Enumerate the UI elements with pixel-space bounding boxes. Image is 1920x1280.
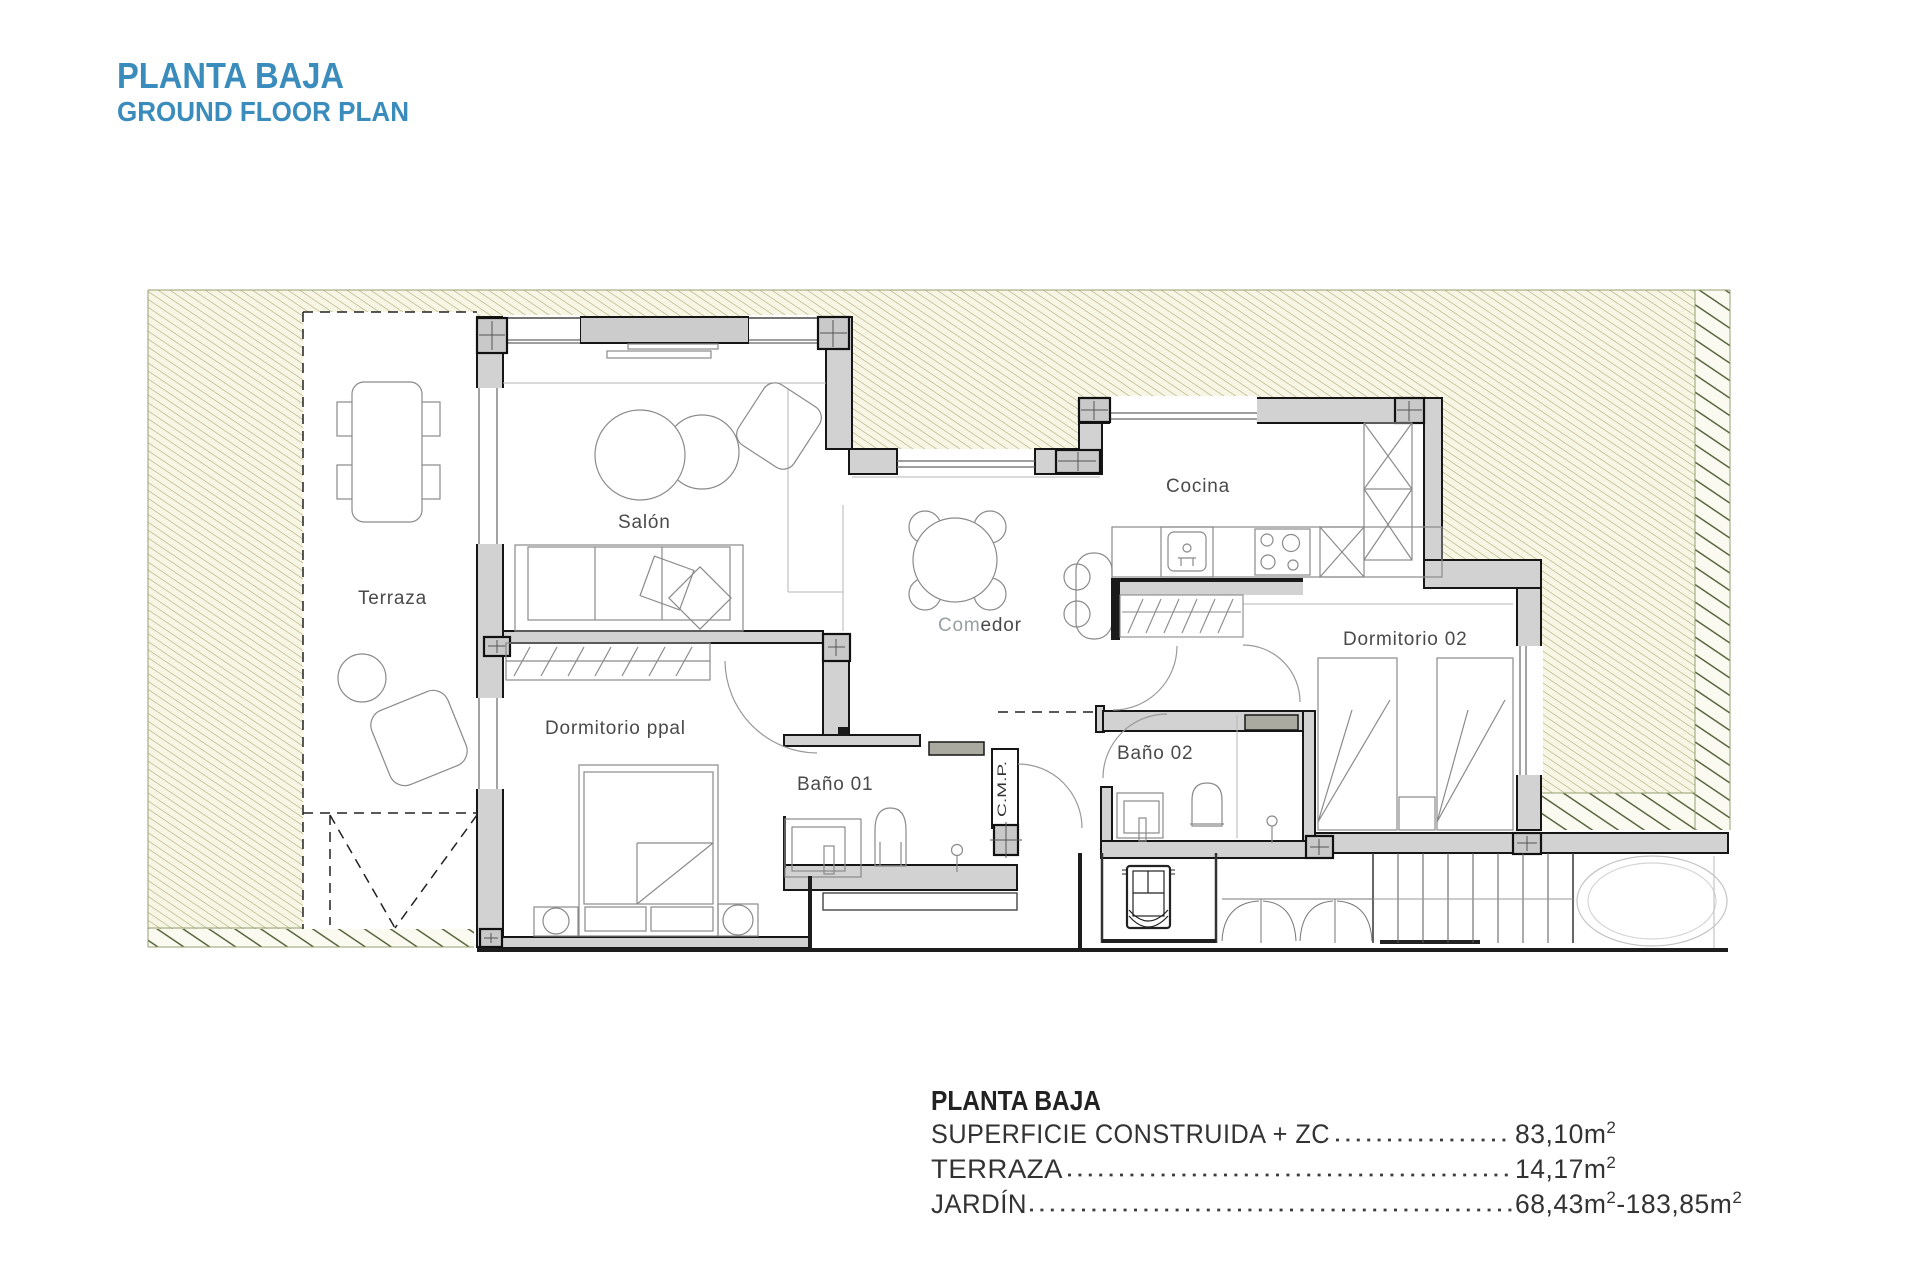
- svg-text:PLANTA BAJA: PLANTA BAJA: [117, 55, 344, 96]
- svg-text:Dormitorio ppal: Dormitorio ppal: [545, 718, 686, 739]
- svg-text:Comedor: Comedor: [938, 615, 1022, 636]
- svg-text:14,17m2: 14,17m2: [1515, 1153, 1616, 1184]
- svg-text:TERRAZA: TERRAZA: [931, 1154, 1063, 1184]
- svg-text:GROUND FLOOR PLAN: GROUND FLOOR PLAN: [117, 96, 409, 127]
- svg-text:Salón: Salón: [618, 512, 671, 533]
- svg-text:Dormitorio 02: Dormitorio 02: [1343, 629, 1467, 650]
- svg-text:C.M.P.: C.M.P.: [995, 761, 1009, 817]
- svg-text:Baño 01: Baño 01: [797, 774, 873, 795]
- svg-text:Baño 02: Baño 02: [1117, 743, 1193, 764]
- svg-text:SUPERFICIE CONSTRUIDA + ZC: SUPERFICIE CONSTRUIDA + ZC: [931, 1119, 1330, 1149]
- svg-text:Cocina: Cocina: [1166, 476, 1230, 497]
- svg-text:Terraza: Terraza: [358, 588, 427, 609]
- svg-text:68,43m2-183,85m2: 68,43m2-183,85m2: [1515, 1188, 1742, 1219]
- svg-text:83,10m2: 83,10m2: [1515, 1118, 1616, 1149]
- svg-text:PLANTA BAJA: PLANTA BAJA: [931, 1085, 1101, 1116]
- svg-text:JARDÍN: JARDÍN: [931, 1189, 1027, 1219]
